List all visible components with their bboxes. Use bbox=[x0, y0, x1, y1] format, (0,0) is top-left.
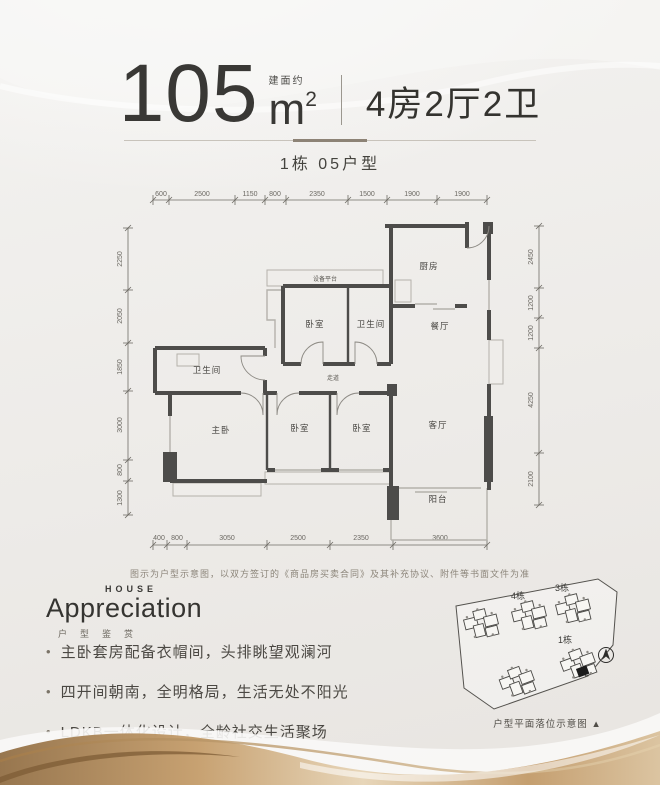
dim-label: 2050 bbox=[117, 308, 124, 324]
area-value: 105 bbox=[119, 56, 259, 131]
header: 105 建面约 m2 4房2厅2卫 1栋 05户型 bbox=[0, 56, 660, 174]
dim-label: 1150 bbox=[242, 191, 257, 198]
wall-master bbox=[170, 393, 267, 481]
floorplan-poster: 105 建面约 m2 4房2厅2卫 1栋 05户型 600 2500 1150 … bbox=[0, 0, 660, 785]
rooms-summary: 4房2厅2卫 bbox=[366, 76, 541, 131]
dim-label: 3600 bbox=[432, 535, 448, 542]
dim-label: 800 bbox=[171, 535, 183, 542]
bathroom-left-door bbox=[241, 356, 265, 380]
column-living-right bbox=[484, 416, 493, 482]
gold-wave-decoration bbox=[0, 665, 660, 785]
bedroom-mid-door bbox=[301, 342, 323, 364]
column-master-corner bbox=[163, 452, 177, 482]
logo-appreciation-text: Appreciation bbox=[46, 593, 216, 624]
floorplan-drawing: 600 2500 1150 800 2350 1500 1900 1900 22… bbox=[115, 188, 545, 563]
building-label-3: 3栋 bbox=[555, 582, 569, 593]
dim-label: 4250 bbox=[528, 392, 535, 408]
building-label-1: 1栋 bbox=[558, 634, 572, 645]
dim-label: 2500 bbox=[290, 535, 306, 542]
room-label-dining: 餐厅 bbox=[430, 321, 449, 331]
dim-label: 800 bbox=[269, 191, 281, 198]
bullet-dot-icon: • bbox=[46, 644, 52, 659]
room-label-bedroom-mid: 卧室 bbox=[305, 319, 324, 329]
logo-cn-caption: 户型鉴赏 bbox=[58, 627, 216, 640]
building-label-4: 4栋 bbox=[511, 590, 525, 601]
room-label-bathroom-mid: 卫生间 bbox=[357, 319, 386, 329]
dim-label: 1200 bbox=[528, 325, 535, 341]
bedroom1-door bbox=[277, 393, 299, 415]
dim-label: 2350 bbox=[353, 535, 369, 542]
room-label-bedroom-b1: 卧室 bbox=[290, 423, 309, 433]
room-label-master: 主卧 bbox=[211, 425, 230, 435]
room-label-equipment-platform: 设备平台 bbox=[313, 275, 337, 283]
dim-label: 1850 bbox=[117, 359, 124, 375]
room-label-corridor: 走道 bbox=[327, 374, 339, 382]
dim-label: 1300 bbox=[117, 490, 124, 506]
brand-logo: HOUSE Appreciation 户型鉴赏 bbox=[46, 584, 216, 640]
dim-label: 1500 bbox=[359, 191, 375, 198]
area-unit: m bbox=[269, 85, 306, 134]
dim-label: 3050 bbox=[219, 535, 235, 542]
room-label-kitchen: 厨房 bbox=[419, 261, 438, 271]
header-rule bbox=[124, 140, 536, 141]
dim-label: 400 bbox=[153, 535, 165, 542]
header-divider bbox=[341, 75, 342, 125]
dim-line-right bbox=[534, 223, 544, 508]
dim-line-left bbox=[123, 225, 133, 518]
bathroom-mid-door bbox=[355, 342, 377, 364]
dim-label: 2100 bbox=[528, 471, 535, 487]
dim-label: 2500 bbox=[194, 191, 210, 198]
dim-label: 3000 bbox=[117, 417, 124, 433]
area-unit-group: 建面约 m2 bbox=[269, 72, 317, 132]
column-balcony-left bbox=[387, 486, 399, 520]
feature-text: 主卧套房配备衣帽间，头排眺望观澜河 bbox=[61, 641, 333, 662]
dim-label: 2450 bbox=[528, 249, 535, 265]
dim-label: 1200 bbox=[528, 295, 535, 311]
area-unit-superscript: 2 bbox=[305, 88, 317, 111]
dim-label: 800 bbox=[117, 464, 124, 476]
balcony-sliding-door bbox=[399, 488, 481, 492]
column bbox=[387, 384, 397, 396]
kitchen-sliding-door bbox=[415, 304, 455, 309]
room-label-bedroom-b2: 卧室 bbox=[352, 423, 371, 433]
dim-label: 2250 bbox=[117, 251, 124, 267]
dim-label: 2350 bbox=[309, 191, 325, 198]
dim-label: 1900 bbox=[404, 191, 420, 198]
dining-bay-window bbox=[489, 340, 503, 384]
feature-item: • 主卧套房配备衣帽间，头排眺望观澜河 bbox=[46, 641, 349, 662]
kitchen-counter bbox=[395, 280, 411, 302]
ac-platform-step bbox=[267, 290, 283, 348]
bedroom2-door bbox=[337, 393, 359, 415]
master-bay-window bbox=[173, 483, 261, 496]
bedroom-window-platform bbox=[265, 472, 391, 484]
room-label-balcony: 阳台 bbox=[428, 494, 447, 504]
room-label-living: 客厅 bbox=[428, 420, 447, 430]
master-door bbox=[241, 393, 263, 415]
unit-title: 1栋 05户型 bbox=[0, 150, 660, 174]
dim-label: 600 bbox=[155, 191, 167, 198]
dim-label: 1900 bbox=[454, 191, 470, 198]
room-label-bathroom-left: 卫生间 bbox=[193, 365, 222, 375]
